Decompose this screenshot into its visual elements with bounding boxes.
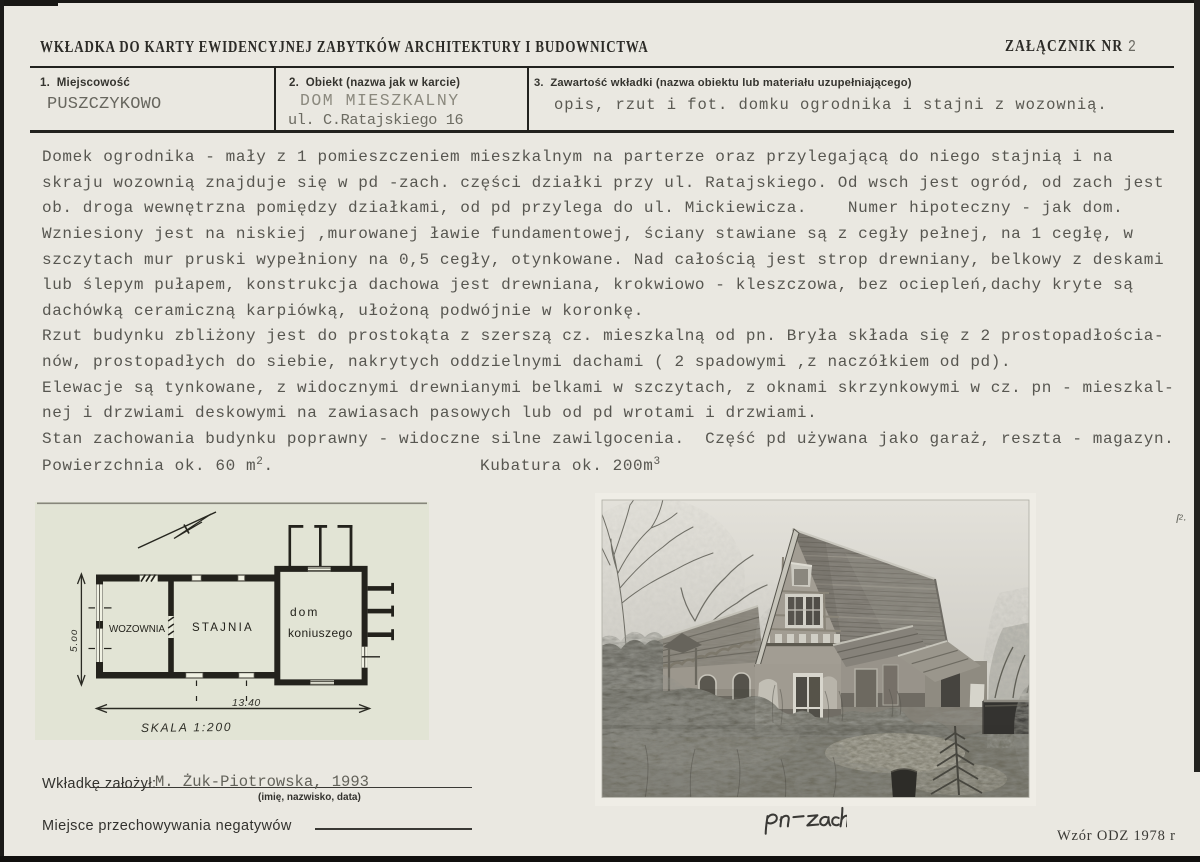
svg-text:13.40: 13.40 [232, 697, 261, 709]
svg-text:5.oo: 5.oo [69, 629, 80, 652]
svg-text:SKALA 1:200: SKALA 1:200 [141, 720, 233, 735]
svg-text:STAJNIA: STAJNIA [192, 622, 254, 634]
svg-text:dom: dom [290, 605, 319, 619]
svg-text:WOZOWNIA: WOZOWNIA [109, 624, 166, 635]
svg-text:koniuszego: koniuszego [288, 626, 353, 640]
